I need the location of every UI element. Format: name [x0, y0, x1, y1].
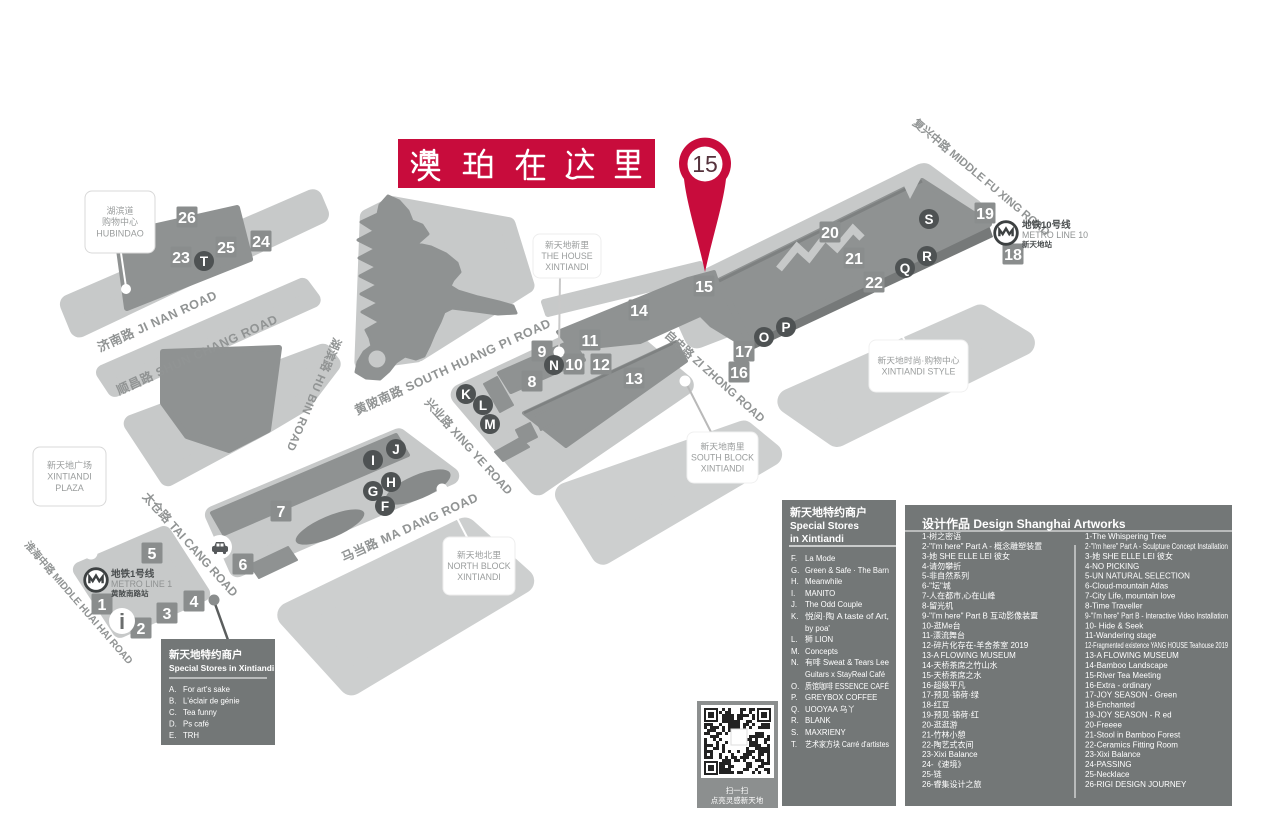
svg-text:XINTIANDI: XINTIANDI — [545, 262, 589, 272]
svg-text:SOUTH BLOCK: SOUTH BLOCK — [691, 453, 754, 463]
svg-text:18-红豆: 18-红豆 — [922, 700, 950, 710]
svg-text:13: 13 — [625, 371, 643, 388]
svg-text:15-River Tea Meeting: 15-River Tea Meeting — [1085, 671, 1161, 680]
svg-text:3-她 SHE ELLE LEI 彼女: 3-她 SHE ELLE LEI 彼女 — [1085, 551, 1173, 561]
svg-text:O.: O. — [791, 682, 799, 691]
svg-text:2-"I'm here" Part A - Sculptur: 2-"I'm here" Part A - Sculpture Concept … — [1085, 542, 1228, 551]
svg-text:23-Xixi Balance: 23-Xixi Balance — [1085, 750, 1141, 759]
svg-text:N.: N. — [791, 658, 799, 667]
svg-text:17-预见·锦荷·绿: 17-预见·锦荷·绿 — [922, 690, 979, 700]
svg-text:Meanwhile: Meanwhile — [805, 577, 842, 586]
svg-text:5-非自然系列: 5-非自然系列 — [922, 571, 969, 581]
svg-text:15: 15 — [695, 279, 713, 296]
svg-text:GREYBOX COFFEE: GREYBOX COFFEE — [805, 693, 877, 702]
svg-text:质馆咖啡 ESSENCE CAFÉ: 质馆咖啡 ESSENCE CAFÉ — [805, 681, 889, 691]
svg-text:10- Hide & Seek: 10- Hide & Seek — [1085, 621, 1144, 630]
svg-text:设计作品 Design Shanghai Artworks: 设计作品 Design Shanghai Artworks — [922, 516, 1126, 531]
svg-text:新天地广场: 新天地广场 — [47, 459, 92, 470]
svg-text:19: 19 — [976, 206, 994, 223]
svg-text:1-The Whispering Tree: 1-The Whispering Tree — [1085, 532, 1167, 541]
svg-text:9: 9 — [538, 344, 547, 361]
svg-text:E.: E. — [169, 731, 176, 740]
svg-text:新天地时尚·购物中心: 新天地时尚·购物中心 — [877, 355, 959, 366]
svg-text:新天地新里: 新天地新里 — [545, 239, 589, 250]
svg-text:F: F — [381, 499, 389, 514]
svg-text:R: R — [922, 249, 932, 264]
svg-text:21: 21 — [845, 251, 863, 268]
svg-text:10-逛Me台: 10-逛Me台 — [922, 620, 961, 630]
svg-text:2-"I'm here" Part A - 概念雕塑装置: 2-"I'm here" Part A - 概念雕塑装置 — [922, 541, 1042, 551]
svg-text:17: 17 — [735, 344, 753, 361]
svg-text:For art's sake: For art's sake — [183, 685, 230, 694]
svg-text:狮 LION: 狮 LION — [805, 635, 833, 644]
svg-text:S: S — [924, 212, 933, 227]
svg-text:Special Stores: Special Stores — [790, 521, 859, 532]
svg-text:16-Extra - ordinary: 16-Extra - ordinary — [1085, 681, 1151, 690]
svg-text:21-竹林小憩: 21-竹林小憩 — [922, 729, 966, 739]
svg-text:H: H — [386, 475, 396, 490]
svg-text:9-"I'm here" Part B 互动影像装置: 9-"I'm here" Part B 互动影像装置 — [922, 610, 1038, 620]
svg-text:25-Necklace: 25-Necklace — [1085, 770, 1130, 779]
svg-text:6: 6 — [239, 557, 248, 574]
svg-text:23-Xixi Balance: 23-Xixi Balance — [922, 750, 978, 759]
svg-text:25: 25 — [217, 240, 235, 257]
svg-text:7-City Life, mountain love: 7-City Life, mountain love — [1085, 592, 1176, 601]
svg-text:by poa': by poa' — [805, 624, 830, 633]
svg-text:XINTIANDI: XINTIANDI — [47, 472, 92, 482]
svg-text:L: L — [479, 398, 487, 413]
svg-text:19-JOY SEASON - R ed: 19-JOY SEASON - R ed — [1085, 711, 1172, 720]
svg-text:3-她 SHE ELLE LEI 彼女: 3-她 SHE ELLE LEI 彼女 — [922, 551, 1010, 561]
svg-text:Q.: Q. — [791, 705, 799, 714]
svg-text:4: 4 — [190, 594, 199, 611]
svg-text:4-NO PICKING: 4-NO PICKING — [1085, 562, 1139, 571]
svg-text:有啡 Sweat & Tears Lee: 有啡 Sweat & Tears Lee — [805, 657, 889, 667]
svg-text:悦阅·陶 A taste of Art,: 悦阅·陶 A taste of Art, — [805, 611, 889, 621]
svg-text:MANITO: MANITO — [805, 589, 835, 598]
svg-text:24-《速境》: 24-《速境》 — [922, 759, 966, 769]
svg-text:新天地特约商户: 新天地特约商户 — [790, 505, 867, 519]
svg-text:17-JOY SEASON - Green: 17-JOY SEASON - Green — [1085, 691, 1177, 700]
svg-text:B.: B. — [169, 697, 176, 706]
svg-text:UOOYAA 乌丫: UOOYAA 乌丫 — [805, 704, 855, 714]
svg-text:L.: L. — [791, 635, 798, 644]
svg-text:Green & Safe · The Barn: Green & Safe · The Barn — [805, 566, 889, 575]
svg-text:22-Ceramics Fitting Room: 22-Ceramics Fitting Room — [1085, 740, 1178, 749]
svg-text:11-漂流舞台: 11-漂流舞台 — [922, 630, 965, 640]
svg-text:11-Wandering stage: 11-Wandering stage — [1085, 631, 1157, 640]
svg-text:Tea funny: Tea funny — [183, 708, 217, 717]
svg-text:D.: D. — [169, 720, 177, 729]
svg-text:1-树之密语: 1-树之密语 — [922, 531, 961, 541]
svg-text:T.: T. — [791, 740, 797, 749]
svg-text:H.: H. — [791, 577, 799, 586]
svg-text:26: 26 — [178, 210, 196, 227]
svg-text:N: N — [549, 358, 559, 373]
svg-text:J: J — [392, 442, 400, 457]
svg-text:13-A FLOWING MUSEUM: 13-A FLOWING MUSEUM — [922, 651, 1016, 660]
svg-text:K.: K. — [791, 612, 798, 621]
svg-text:L'éclair de génie: L'éclair de génie — [183, 697, 240, 706]
svg-text:O: O — [759, 330, 770, 345]
svg-text:1: 1 — [98, 597, 107, 614]
svg-text:6-"坛"城: 6-"坛"城 — [922, 581, 951, 591]
svg-text:C.: C. — [169, 708, 177, 717]
svg-text:24-PASSING: 24-PASSING — [1085, 760, 1132, 769]
svg-text:K: K — [461, 387, 471, 402]
svg-text:A.: A. — [169, 685, 176, 694]
svg-text:21-Stool in Bamboo Forest: 21-Stool in Bamboo Forest — [1085, 730, 1181, 739]
svg-text:10: 10 — [565, 357, 583, 374]
svg-text:20-逛逛游: 20-逛逛游 — [922, 720, 958, 730]
svg-text:HUBINDAO: HUBINDAO — [96, 228, 144, 238]
svg-text:20-Freeee: 20-Freeee — [1085, 721, 1122, 730]
svg-text:15-天桥茶席之水: 15-天桥茶席之水 — [922, 670, 982, 680]
svg-text:THE HOUSE: THE HOUSE — [541, 251, 592, 261]
svg-text:新天地站: 新天地站 — [1022, 239, 1052, 249]
svg-text:P.: P. — [791, 693, 797, 702]
svg-text:XINTIANDI: XINTIANDI — [701, 464, 745, 474]
svg-text:NORTH BLOCK: NORTH BLOCK — [447, 561, 511, 571]
svg-text:黄陂南路站: 黄陂南路站 — [111, 588, 149, 598]
svg-text:13-A FLOWING MUSEUM: 13-A FLOWING MUSEUM — [1085, 651, 1179, 660]
svg-text:Special Stores in Xintiandi: Special Stores in Xintiandi — [169, 663, 274, 673]
svg-text:24: 24 — [252, 234, 270, 251]
svg-text:I: I — [371, 453, 375, 468]
svg-text:新天地北里: 新天地北里 — [457, 549, 501, 560]
svg-text:M: M — [484, 417, 495, 432]
svg-text:I.: I. — [791, 589, 795, 598]
svg-text:新天地南里: 新天地南里 — [701, 441, 745, 452]
svg-text:艺术家方块 Carré d'artistes: 艺术家方块 Carré d'artistes — [805, 739, 889, 749]
svg-text:14: 14 — [630, 303, 648, 320]
svg-text:15: 15 — [692, 151, 718, 177]
svg-text:18: 18 — [1004, 247, 1022, 264]
svg-text:METRO LINE 10: METRO LINE 10 — [1022, 230, 1088, 240]
svg-text:点亮灵感新天地: 点亮灵感新天地 — [711, 795, 764, 805]
svg-text:4-请勿攀折: 4-请勿攀折 — [922, 561, 961, 571]
svg-text:12-碎片化存在-羊舍茶室 2019: 12-碎片化存在-羊舍茶室 2019 — [922, 640, 1029, 650]
svg-text:XINTIANDI: XINTIANDI — [457, 572, 501, 582]
svg-text:5: 5 — [148, 546, 157, 563]
svg-text:8: 8 — [528, 374, 537, 391]
svg-text:购物中心: 购物中心 — [102, 216, 138, 227]
svg-text:14-天桥茶席之竹山水: 14-天桥茶席之竹山水 — [922, 660, 998, 670]
svg-text:22: 22 — [865, 275, 883, 292]
svg-text:R.: R. — [791, 716, 799, 725]
svg-text:7-人在都市,心在山峰: 7-人在都市,心在山峰 — [922, 591, 995, 601]
svg-text:METRO LINE 1: METRO LINE 1 — [111, 579, 172, 589]
svg-text:8-Time Traveller: 8-Time Traveller — [1085, 601, 1143, 610]
svg-text:12-Fragmented existence YANG H: 12-Fragmented existence YANG HOUSE Teaho… — [1085, 641, 1228, 650]
svg-text:5-UN NATURAL SELECTION: 5-UN NATURAL SELECTION — [1085, 572, 1190, 581]
svg-text:MAXRIENY: MAXRIENY — [805, 728, 847, 737]
svg-text:20: 20 — [821, 225, 839, 242]
svg-text:The Odd Couple: The Odd Couple — [805, 600, 862, 609]
svg-text:新天地特约商户: 新天地特约商户 — [169, 648, 243, 661]
svg-text:3: 3 — [163, 606, 172, 623]
svg-text:Concepts: Concepts — [805, 647, 838, 656]
svg-text:14-Bamboo Landscape: 14-Bamboo Landscape — [1085, 661, 1168, 670]
svg-text:22-陶艺式衣间: 22-陶艺式衣间 — [922, 739, 974, 749]
svg-text:M.: M. — [791, 647, 800, 656]
svg-text:12: 12 — [592, 357, 610, 374]
svg-text:P: P — [781, 320, 790, 335]
svg-text:J.: J. — [791, 600, 797, 609]
svg-text:25-链: 25-链 — [922, 769, 942, 779]
svg-text:扫一扫: 扫一扫 — [726, 785, 749, 795]
svg-text:G: G — [368, 484, 379, 499]
svg-text:Q: Q — [900, 261, 911, 276]
svg-text:i: i — [119, 609, 125, 634]
svg-text:BLANK: BLANK — [805, 716, 831, 725]
svg-text:T: T — [200, 254, 209, 269]
svg-text:19-预见·锦荷·红: 19-预见·锦荷·红 — [922, 710, 979, 720]
svg-text:9-"I'm here" Part B - Interact: 9-"I'm here" Part B - Interactive Video … — [1085, 611, 1228, 620]
svg-text:6-Cloud-mountain Atlas: 6-Cloud-mountain Atlas — [1085, 582, 1168, 591]
svg-text:26-睿集设计之旅: 26-睿集设计之旅 — [922, 779, 982, 789]
svg-text:G.: G. — [791, 566, 799, 575]
svg-text:16: 16 — [730, 365, 748, 382]
svg-text:8-留光机: 8-留光机 — [922, 600, 953, 610]
svg-text:PLAZA: PLAZA — [55, 483, 84, 493]
svg-text:7: 7 — [277, 504, 286, 521]
svg-text:S.: S. — [791, 728, 798, 737]
svg-text:in Xintiandi: in Xintiandi — [790, 534, 844, 545]
svg-text:TRH: TRH — [183, 731, 199, 740]
svg-text:湖滨道: 湖滨道 — [106, 205, 133, 216]
svg-text:F.: F. — [791, 554, 797, 563]
svg-text:16-超级平凡: 16-超级平凡 — [922, 680, 966, 690]
svg-text:La Mode: La Mode — [805, 554, 835, 563]
svg-text:2: 2 — [137, 621, 146, 638]
svg-text:Ps café: Ps café — [183, 720, 209, 729]
svg-text:18-Enchanted: 18-Enchanted — [1085, 701, 1135, 710]
svg-text:Guitars x StayReal Café: Guitars x StayReal Café — [805, 670, 885, 679]
svg-text:26-RIGI DESIGN JOURNEY: 26-RIGI DESIGN JOURNEY — [1085, 780, 1187, 789]
svg-text:XINTIANDI STYLE: XINTIANDI STYLE — [882, 367, 956, 377]
svg-text:11: 11 — [582, 333, 599, 350]
svg-text:23: 23 — [172, 250, 190, 267]
